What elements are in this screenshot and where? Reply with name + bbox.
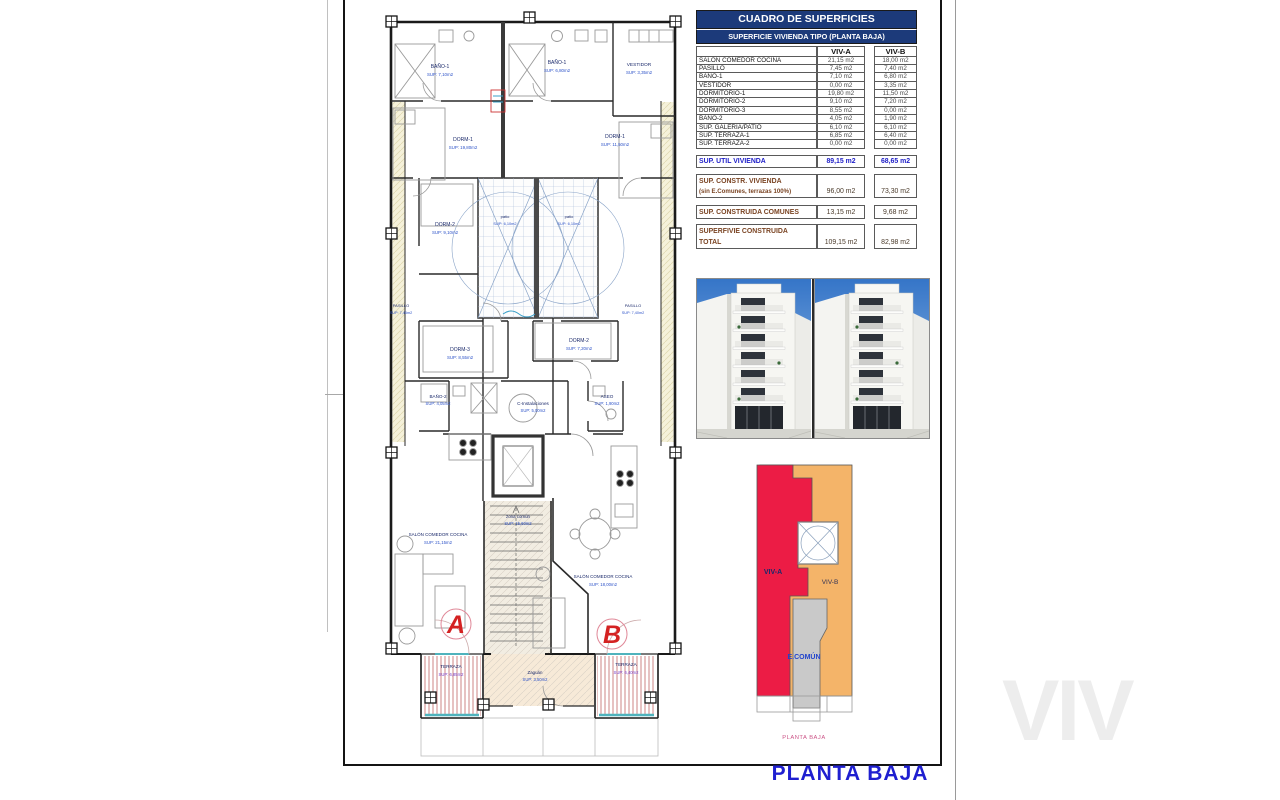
room-area: SUP: 5,00m2 — [521, 408, 547, 413]
room-area: SUP: 7,45m2 — [390, 311, 413, 315]
surfaces-table: CUADRO DE SUPERFICIES SUPERFICIE VIVIEND… — [696, 10, 917, 249]
room-area: SUP: 15,60m2 — [504, 521, 532, 526]
room-label: DORM-2 — [569, 338, 589, 344]
room-area: SUP: 4,05m2 — [426, 401, 452, 406]
room-label: DORM-2 — [435, 222, 455, 228]
room-area: SUP: 7,40m2 — [622, 311, 645, 315]
room-label: BAÑO-1 — [431, 63, 450, 70]
room-area: SUP: 6,40m2 — [614, 670, 640, 675]
key-plan: VIV-A VIV-B E.COMÚN PLANTA BAJA — [740, 456, 870, 748]
table-subtitle: SUPERFICIE VIVIENDA TIPO (PLANTA BAJA) — [696, 29, 917, 44]
room-label: zona común — [506, 514, 530, 519]
unit-a-letter: A — [446, 611, 465, 639]
room-area: SUP: 19,80m2 — [449, 145, 478, 150]
room-area: SUP: 6,10m2 — [493, 221, 516, 226]
room-area: SUP: 8,55m2 — [447, 355, 474, 360]
keyplan-core — [798, 522, 838, 564]
floor-plan-drawing: BAÑO-1 SUP: 7,10m2 BAÑO-1 SUP: 6,80m2 VE… — [383, 6, 683, 762]
margin-line-right — [955, 0, 956, 800]
room-area: SUP: 9,10m2 — [432, 230, 459, 235]
room-label: ASEO — [601, 394, 614, 399]
room-area: SUP: 3,50m2 — [523, 677, 549, 682]
summary-total-row: SUPERFIVIE CONSTRUIDA TOTAL 109,15 m2 82… — [696, 224, 917, 249]
plan-sheet: BAÑO-1 SUP: 7,10m2 BAÑO-1 SUP: 6,80m2 VE… — [0, 0, 1280, 800]
keyplan-viv-b-label: VIV-B — [822, 579, 839, 586]
summary-util-row: SUP. UTIL VIVIENDA 89,15 m2 68,65 m2 — [696, 155, 917, 168]
room-label: DORM-3 — [450, 347, 470, 353]
summary-comunes-row: SUP. CONSTRUIDA COMUNES 13,15 m2 9,68 m2 — [696, 205, 917, 219]
room-label: PASILLO — [625, 303, 641, 308]
room-area: SUP: 7,10m2 — [427, 72, 454, 77]
room-area: SUP: 6,80m2 — [544, 68, 571, 73]
total-label2: TOTAL — [699, 239, 721, 246]
room-label: TERRAZA — [615, 662, 637, 667]
room-label: SALÓN COMEDOR COCINA — [574, 573, 633, 579]
keyplan-viv-a-label: VIV-A — [764, 569, 782, 576]
room-area: SUP: 3,35m2 — [626, 70, 653, 75]
building-render-image — [696, 278, 930, 439]
patio-court — [452, 178, 624, 318]
summary-constr-row: SUP. CONSTR. VIVIENDA (sin E.Comunes, te… — [696, 174, 917, 198]
elevator-shaft — [493, 436, 543, 496]
margin-line-left — [327, 0, 328, 632]
room-label: DORM-1 — [605, 134, 625, 140]
table-title: CUADRO DE SUPERFICIES — [696, 10, 917, 29]
room-label: patio — [501, 214, 510, 219]
keyplan-caption: PLANTA BAJA — [782, 735, 825, 741]
room-label: TERRAZA — [440, 664, 462, 669]
table-row: SUP. TERRAZA-20,00 m20,00 m2 — [696, 139, 917, 148]
constr-sublabel: (sin E.Comunes, terrazas 100%) — [699, 188, 791, 195]
margin-tick — [325, 394, 344, 395]
room-label: Zaguán — [528, 670, 543, 675]
room-area: SUP: 21,15m2 — [424, 540, 453, 545]
room-label: PASILLO — [393, 303, 409, 308]
room-label: DORM-1 — [453, 137, 473, 143]
room-label: C-Instalaciones — [517, 401, 549, 406]
room-area: SUP: 11,50m2 — [601, 142, 630, 147]
common-zone-floor — [484, 501, 594, 706]
total-label: SUPERFIVIE CONSTRUIDA — [699, 228, 788, 235]
unit-b-letter: B — [603, 621, 621, 649]
room-label: patio — [565, 214, 574, 219]
constr-label: SUP. CONSTR. VIVIENDA — [699, 178, 782, 185]
room-label: BAÑO-2 — [429, 393, 447, 399]
keyplan-comun-label: E.COMÚN — [787, 652, 820, 661]
agency-watermark: VIV — [1002, 662, 1132, 761]
room-area: SUP: 18,00m2 — [589, 582, 618, 587]
room-label: BAÑO-1 — [548, 59, 567, 66]
room-label: SALÓN COMEDOR COCINA — [409, 531, 468, 537]
room-label: VESTIDOR — [627, 62, 652, 68]
room-area: SUP: 6,10m2 — [557, 221, 580, 226]
building-facade — [697, 279, 811, 438]
room-area: SUP: 7,20m2 — [566, 346, 593, 351]
room-area: SUP: 1,90m2 — [595, 401, 621, 406]
render-divider — [812, 279, 815, 438]
room-area: SUP: 6,85m2 — [439, 672, 465, 677]
